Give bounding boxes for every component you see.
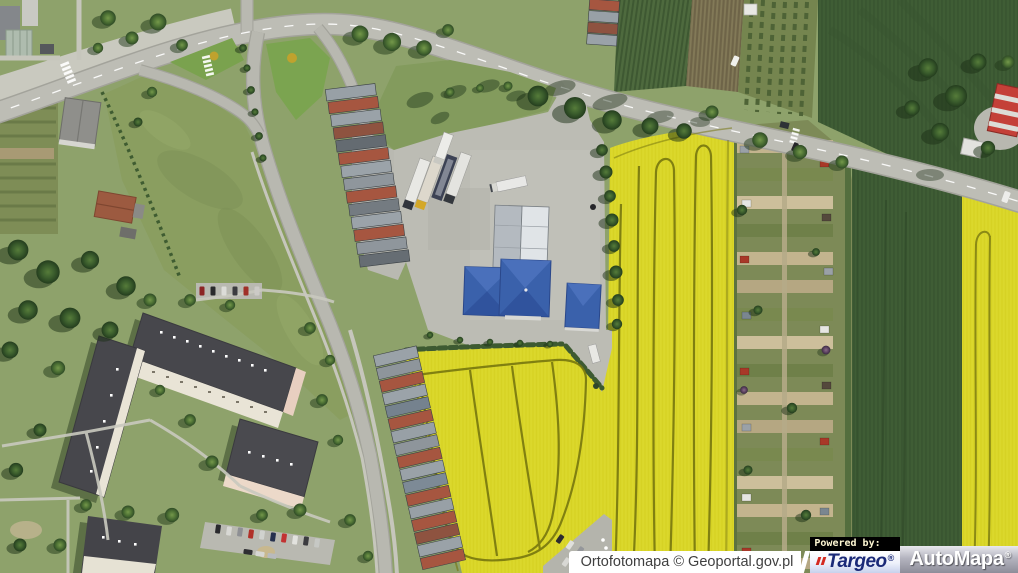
attribution-text: Ortofotomapa © Geoportal.gov.pl [569, 551, 802, 573]
map-viewport: Ortofotomapa © Geoportal.gov.pl Powered … [0, 0, 1018, 573]
targeo-logo[interactable]: Targeo ® [810, 551, 900, 573]
aerial-map[interactable] [0, 0, 1018, 573]
powered-by-label: Powered by: [810, 537, 900, 551]
house-gray [59, 98, 101, 150]
automapa-logo-text: AutoMapa [909, 548, 1003, 571]
attribution-bar: Ortofotomapa © Geoportal.gov.pl Powered … [569, 537, 1018, 573]
targeo-registered-mark: ® [888, 553, 894, 563]
station-building-small [565, 283, 601, 332]
tilled-field [686, 0, 744, 92]
targeo-logo-stack: Powered by: Targeo ® [810, 537, 900, 573]
garage-row-top-edge [587, 0, 620, 46]
targeo-logo-text: Targeo [827, 551, 887, 573]
automapa-logo[interactable]: AutoMapa ® [900, 546, 1018, 573]
row-crop-field [614, 0, 692, 92]
automapa-registered-mark: ® [1005, 550, 1011, 560]
playground [10, 521, 42, 539]
dark-field-southeast [852, 158, 962, 573]
targeo-accent-icon [817, 557, 826, 568]
